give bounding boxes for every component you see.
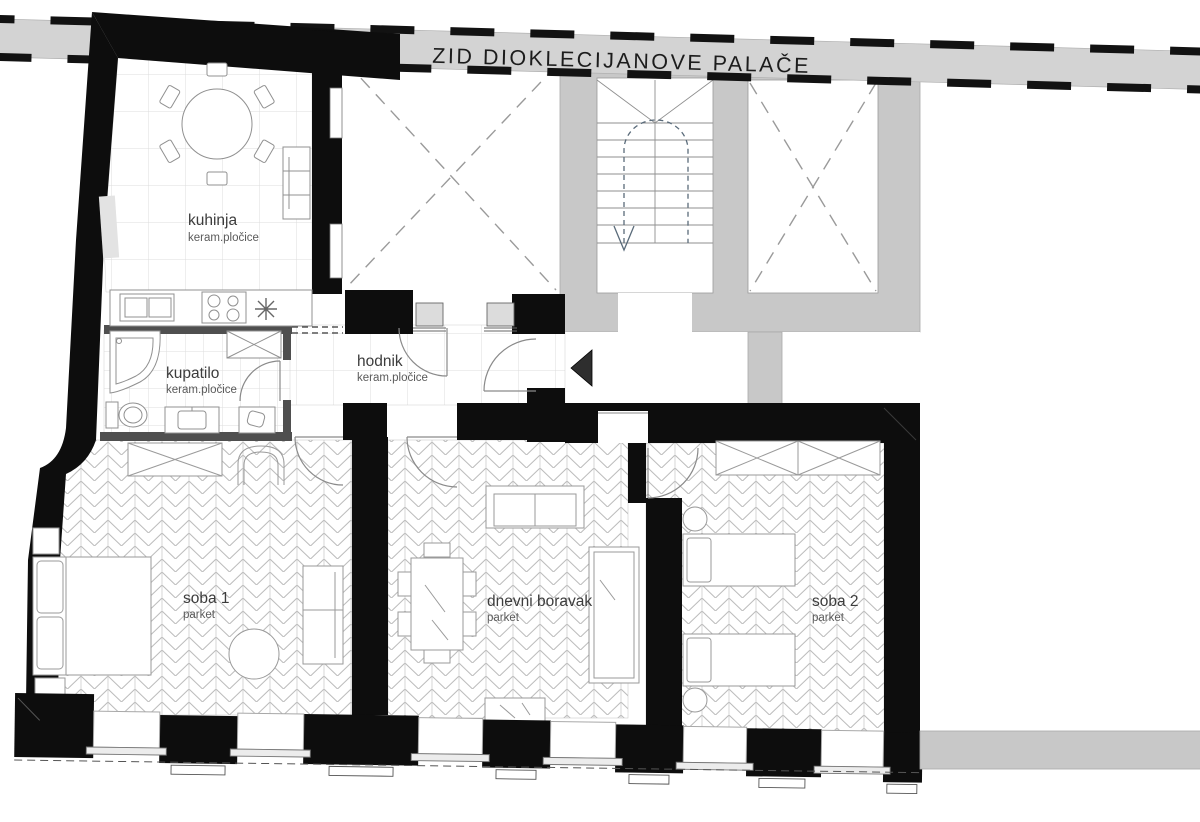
communal-stair-block: [560, 50, 920, 405]
stove: [202, 292, 246, 323]
kitchen-counter: [110, 290, 312, 326]
soba1-sofa: [303, 566, 343, 664]
daybed: [589, 547, 639, 683]
label-kupatilo: kupatilo: [166, 365, 219, 382]
label-hodnik-floor: keram.pločice: [357, 372, 428, 384]
neighbour-wall-band: [920, 731, 1200, 769]
label-soba2: soba 2: [812, 593, 859, 610]
label-kuhinja: kuhinja: [188, 212, 237, 229]
label-soba2-floor: parket: [812, 612, 845, 624]
light-symbol-icon: [255, 298, 277, 320]
label-kuhinja-floor: keram.pločice: [188, 232, 259, 244]
bedside-table-2: [683, 688, 707, 712]
label-hodnik: hodnik: [357, 353, 403, 370]
light-shaft-right: [748, 80, 878, 293]
wardrobe-soba1: [128, 443, 222, 476]
bathroom-sink: [165, 407, 219, 433]
bidet: [239, 407, 275, 433]
label-dnevni-floor: parket: [487, 612, 520, 624]
single-bed-2: [683, 634, 795, 686]
toilet: [106, 402, 147, 428]
label-soba1-floor: parket: [183, 609, 216, 621]
stairwell: [597, 78, 713, 293]
pouf: [229, 629, 279, 679]
label-soba1: soba 1: [183, 590, 230, 607]
light-shaft-left: [346, 62, 556, 290]
sofa-top: [486, 486, 584, 528]
bedside-table-1: [683, 507, 707, 531]
single-bed-1: [683, 534, 795, 586]
label-dnevni: dnevni boravak: [487, 593, 592, 610]
label-kupatilo-floor: keram.pločice: [166, 384, 237, 396]
floor-plan: ZID DIOKLECIJANOVE PALAČE: [0, 0, 1200, 817]
wardrobe-soba2: [716, 441, 880, 475]
hodnik-floor: [288, 325, 565, 405]
kitchen-bench-sofa: [283, 147, 310, 219]
washing-machine: [227, 331, 281, 358]
kitchen-sink: [120, 294, 174, 321]
entrance-landing: [565, 332, 920, 405]
